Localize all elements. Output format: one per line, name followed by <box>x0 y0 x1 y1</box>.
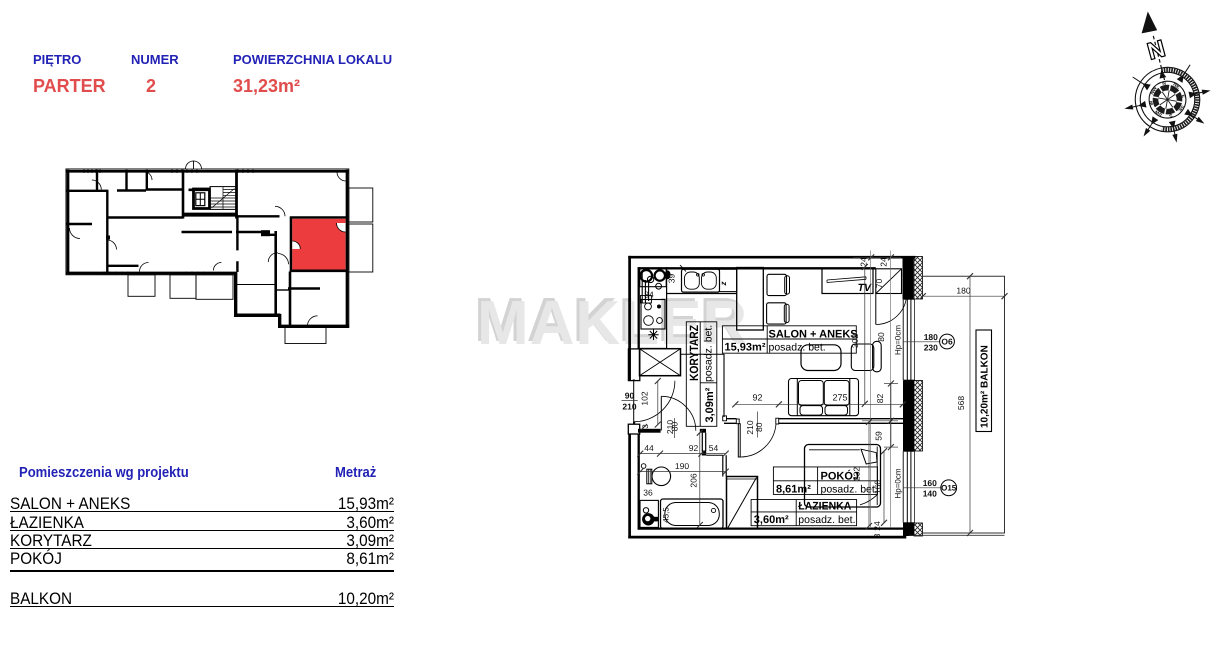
svg-text:70: 70 <box>874 279 884 289</box>
svg-text:24: 24 <box>878 257 888 267</box>
svg-text:34: 34 <box>644 290 654 300</box>
svg-text:z: z <box>719 282 728 287</box>
svg-text:92: 92 <box>689 443 699 453</box>
svg-text:3,60m²: 3,60m² <box>754 514 789 526</box>
svg-text:92: 92 <box>752 393 762 403</box>
svg-text:206: 206 <box>688 473 698 487</box>
svg-text:SALON + ANEKS: SALON + ANEKS <box>769 329 858 341</box>
svg-text:Hp=0cm: Hp=0cm <box>894 468 903 498</box>
svg-text:posadz. bet.: posadz. bet. <box>769 342 826 354</box>
svg-text:Hp=0cm: Hp=0cm <box>894 325 903 355</box>
svg-text:posadz. bet.: posadz. bet. <box>703 325 715 382</box>
svg-text:80: 80 <box>670 422 680 432</box>
svg-text:45,5: 45,5 <box>662 507 671 523</box>
svg-text:24: 24 <box>872 521 882 531</box>
svg-text:210: 210 <box>622 402 636 412</box>
svg-text:80: 80 <box>754 422 764 432</box>
svg-text:44: 44 <box>644 443 654 453</box>
svg-text:54: 54 <box>709 443 719 453</box>
svg-text:568: 568 <box>956 396 966 410</box>
svg-text:posadz. bet.: posadz. bet. <box>798 514 855 526</box>
svg-text:230: 230 <box>924 343 938 353</box>
svg-text:180: 180 <box>956 286 970 296</box>
svg-text:8,61m²: 8,61m² <box>776 483 811 495</box>
svg-text:36: 36 <box>643 488 653 498</box>
svg-text:80: 80 <box>876 332 886 342</box>
svg-text:102: 102 <box>640 391 650 405</box>
svg-text:302: 302 <box>850 334 860 348</box>
svg-text:ŁAZIENKA: ŁAZIENKA <box>798 500 851 512</box>
svg-text:15,93m²: 15,93m² <box>725 342 766 354</box>
svg-text:140: 140 <box>923 489 937 499</box>
svg-text:232: 232 <box>852 467 862 481</box>
svg-text:160: 160 <box>923 478 937 488</box>
svg-text:3: 3 <box>872 533 882 538</box>
svg-text:180: 180 <box>924 332 938 342</box>
svg-text:39: 39 <box>667 274 677 284</box>
svg-text:190: 190 <box>675 461 689 471</box>
svg-text:90: 90 <box>625 391 635 401</box>
svg-text:59: 59 <box>874 431 884 441</box>
svg-text:10,20m² BALKON: 10,20m² BALKON <box>980 345 991 428</box>
svg-text:O15: O15 <box>941 484 957 493</box>
svg-text:O6: O6 <box>941 336 953 346</box>
svg-text:3,09m²: 3,09m² <box>704 387 716 422</box>
svg-text:160: 160 <box>872 480 882 494</box>
svg-text:82: 82 <box>875 394 885 404</box>
svg-text:275: 275 <box>832 393 847 403</box>
svg-text:KORYTARZ: KORYTARZ <box>687 325 701 381</box>
